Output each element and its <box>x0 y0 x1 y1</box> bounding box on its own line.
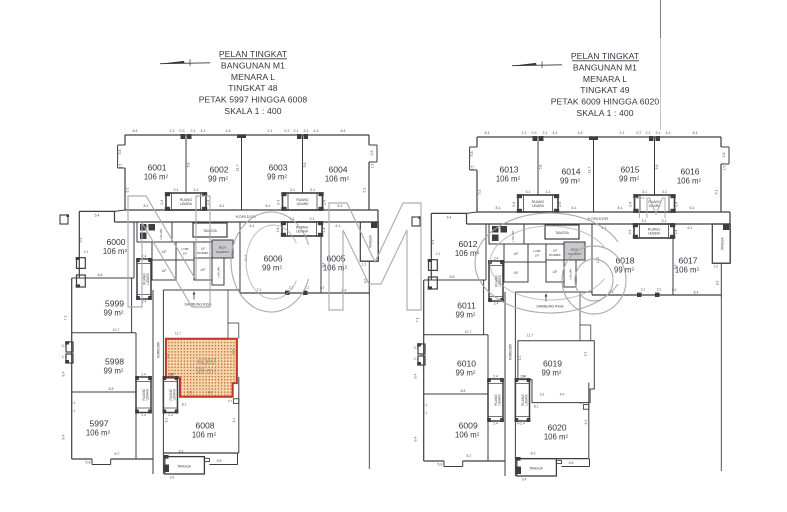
svg-text:2.4: 2.4 <box>277 200 281 205</box>
svg-text:2.4: 2.4 <box>141 413 146 417</box>
svg-text:6.1: 6.1 <box>338 204 343 208</box>
svg-text:99 m2: 99 m2 <box>560 177 580 186</box>
svg-text:5.1: 5.1 <box>478 190 482 195</box>
svg-text:2.4: 2.4 <box>628 230 632 235</box>
svg-text:3.1: 3.1 <box>304 129 309 133</box>
svg-text:5.4: 5.4 <box>447 216 452 220</box>
svg-text:SKALA 1 : 400: SKALA 1 : 400 <box>576 108 633 118</box>
svg-text:KORIDOR: KORIDOR <box>157 342 161 358</box>
svg-text:11.7: 11.7 <box>527 334 533 338</box>
svg-text:SAMBUNG RIGA: SAMBUNG RIGA <box>536 305 564 309</box>
svg-text:BILIK: BILIK <box>219 246 228 250</box>
svg-text:8.4: 8.4 <box>414 437 418 442</box>
svg-text:5.4: 5.4 <box>95 214 100 218</box>
svg-text:0.7: 0.7 <box>285 129 290 133</box>
svg-text:6000: 6000 <box>106 237 125 247</box>
svg-text:5.8: 5.8 <box>470 152 474 157</box>
svg-text:6.1: 6.1 <box>250 224 255 228</box>
svg-text:8.8: 8.8 <box>109 387 114 391</box>
svg-text:106 m2: 106 m2 <box>323 264 348 273</box>
svg-text:3.1: 3.1 <box>526 190 531 194</box>
svg-text:99 m2: 99 m2 <box>103 367 123 376</box>
svg-text:UDARA: UDARA <box>180 202 193 206</box>
svg-text:5999: 5999 <box>105 299 124 309</box>
svg-text:2.1: 2.1 <box>657 288 662 292</box>
svg-text:LIF: LIF <box>183 252 188 256</box>
svg-text:11.7: 11.7 <box>588 167 592 174</box>
svg-text:6007: 6007 <box>197 357 216 367</box>
svg-text:3.1: 3.1 <box>290 188 295 192</box>
svg-text:5.8: 5.8 <box>303 163 307 168</box>
svg-text:UDARA: UDARA <box>532 204 545 208</box>
svg-text:4.0: 4.0 <box>208 391 213 395</box>
svg-text:LALUAN: LALUAN <box>217 267 221 278</box>
svg-text:6.1: 6.1 <box>517 420 521 425</box>
svg-text:5.1: 5.1 <box>126 188 130 193</box>
svg-text:6018: 6018 <box>615 256 634 266</box>
svg-text:4.1: 4.1 <box>553 131 558 135</box>
svg-text:8.1: 8.1 <box>534 405 539 409</box>
svg-text:2.4: 2.4 <box>206 200 210 205</box>
svg-text:5.8: 5.8 <box>438 463 443 467</box>
svg-text:3.1: 3.1 <box>546 190 551 194</box>
svg-text:6.3: 6.3 <box>322 263 326 268</box>
svg-text:TANGGA: TANGGA <box>177 465 191 469</box>
svg-text:8.5: 8.5 <box>716 281 720 286</box>
svg-text:5.8: 5.8 <box>655 165 659 170</box>
svg-text:5.8: 5.8 <box>86 461 91 465</box>
svg-text:UDARA: UDARA <box>498 394 502 406</box>
svg-text:3.1: 3.1 <box>310 217 315 221</box>
svg-text:LIF: LIF <box>162 269 167 273</box>
svg-text:5.8: 5.8 <box>217 459 222 463</box>
svg-text:5.8: 5.8 <box>118 150 122 155</box>
svg-text:2.4: 2.4 <box>494 302 499 306</box>
svg-text:2.1: 2.1 <box>71 409 76 413</box>
svg-text:3.1: 3.1 <box>414 346 419 350</box>
svg-text:2.4: 2.4 <box>141 373 146 377</box>
svg-text:6.1: 6.1 <box>165 418 169 423</box>
svg-text:2.1: 2.1 <box>170 129 175 133</box>
svg-text:3.1: 3.1 <box>423 403 428 407</box>
svg-text:2.1: 2.1 <box>646 131 651 135</box>
svg-text:8.4: 8.4 <box>341 129 346 133</box>
svg-text:UDARA: UDARA <box>525 394 529 406</box>
svg-text:6020: 6020 <box>547 423 566 433</box>
svg-text:5.1: 5.1 <box>363 188 367 193</box>
svg-text:8.3: 8.3 <box>531 452 536 456</box>
svg-text:5.8: 5.8 <box>187 163 191 168</box>
svg-text:8.7: 8.7 <box>467 454 472 458</box>
svg-text:2.4: 2.4 <box>520 375 525 379</box>
svg-text:0.7: 0.7 <box>228 399 233 403</box>
svg-text:99 m2: 99 m2 <box>196 367 216 376</box>
svg-text:3.1: 3.1 <box>188 391 193 395</box>
svg-text:8.3: 8.3 <box>179 450 184 454</box>
svg-text:MENARA L: MENARA L <box>583 74 627 84</box>
svg-text:1.5: 1.5 <box>119 164 123 169</box>
svg-text:6003: 6003 <box>268 163 287 173</box>
svg-text:1.3: 1.3 <box>361 263 366 267</box>
svg-text:106 m2: 106 m2 <box>325 175 350 184</box>
svg-text:8.4: 8.4 <box>62 435 66 440</box>
svg-text:6.1: 6.1 <box>336 224 341 228</box>
svg-text:5997: 5997 <box>89 419 108 429</box>
svg-text:6015: 6015 <box>620 165 639 175</box>
svg-text:1.5: 1.5 <box>371 164 375 169</box>
svg-text:MENARA L: MENARA L <box>231 72 275 82</box>
svg-text:2.2: 2.2 <box>231 350 235 355</box>
svg-text:0.9: 0.9 <box>320 286 325 290</box>
svg-text:2.4: 2.4 <box>520 422 525 426</box>
svg-text:3.1: 3.1 <box>642 190 647 194</box>
svg-text:2.4: 2.4 <box>493 422 498 426</box>
svg-text:11.7: 11.7 <box>236 165 240 172</box>
svg-text:LOBI: LOBI <box>181 247 188 251</box>
svg-text:SKALA 1 : 400: SKALA 1 : 400 <box>224 106 281 116</box>
svg-text:6004: 6004 <box>328 165 347 175</box>
svg-text:8.4: 8.4 <box>342 289 347 293</box>
svg-text:UDARA: UDARA <box>146 388 150 400</box>
svg-text:LIF: LIF <box>535 254 540 258</box>
svg-text:LIF: LIF <box>162 250 167 254</box>
svg-text:UDARA: UDARA <box>297 202 310 206</box>
svg-text:6.1: 6.1 <box>232 418 236 423</box>
svg-text:99 m2: 99 m2 <box>262 264 282 273</box>
svg-text:4.1: 4.1 <box>201 129 206 133</box>
svg-text:5.1: 5.1 <box>715 190 719 195</box>
svg-text:3.4: 3.4 <box>522 478 527 482</box>
svg-text:3.1: 3.1 <box>71 401 76 405</box>
svg-text:3.1: 3.1 <box>642 219 647 223</box>
svg-text:BANGUNAN M1: BANGUNAN M1 <box>573 62 637 72</box>
svg-text:2.1: 2.1 <box>436 252 441 256</box>
svg-text:8.4: 8.4 <box>414 374 418 379</box>
svg-text:6012: 6012 <box>458 239 477 249</box>
svg-text:4.1: 4.1 <box>518 356 522 361</box>
svg-text:106 m2: 106 m2 <box>544 433 569 442</box>
svg-text:1.5: 1.5 <box>471 166 475 171</box>
svg-text:99 m2: 99 m2 <box>208 175 228 184</box>
svg-text:5.4: 5.4 <box>431 240 435 245</box>
svg-text:BOMBA: BOMBA <box>549 253 561 257</box>
svg-text:6010: 6010 <box>457 359 476 369</box>
svg-text:0.3: 0.3 <box>532 131 537 135</box>
svg-text:106 m2: 106 m2 <box>496 175 521 184</box>
svg-text:8.1: 8.1 <box>144 204 149 208</box>
svg-text:11.7: 11.7 <box>113 328 120 332</box>
svg-text:1.8: 1.8 <box>226 129 231 133</box>
svg-text:LIF: LIF <box>514 271 519 275</box>
svg-text:106 m2: 106 m2 <box>675 266 700 275</box>
svg-text:3.1: 3.1 <box>310 188 315 192</box>
svg-text:KORIDOR: KORIDOR <box>509 344 513 360</box>
svg-text:LOBI: LOBI <box>533 249 540 253</box>
svg-text:2.2: 2.2 <box>583 352 587 357</box>
svg-text:3.1: 3.1 <box>194 188 199 192</box>
svg-text:PETAK 5997 HINGGA 6008: PETAK 5997 HINGGA 6008 <box>199 95 308 105</box>
svg-text:8.8: 8.8 <box>461 389 466 393</box>
svg-text:2.1: 2.1 <box>294 129 299 133</box>
svg-text:8.4: 8.4 <box>133 129 138 133</box>
svg-text:6011: 6011 <box>457 301 476 311</box>
svg-text:BANGUNAN M1: BANGUNAN M1 <box>221 60 285 70</box>
svg-text:2.1: 2.1 <box>191 129 196 133</box>
svg-text:6.1: 6.1 <box>572 206 577 210</box>
svg-text:8.4: 8.4 <box>485 131 490 135</box>
svg-text:UDARA: UDARA <box>146 273 150 285</box>
svg-text:8.1: 8.1 <box>496 206 501 210</box>
svg-text:8.7: 8.7 <box>115 452 120 456</box>
svg-text:6017: 6017 <box>678 256 697 266</box>
svg-text:TANGGA: TANGGA <box>555 231 569 235</box>
svg-text:3.1: 3.1 <box>174 188 179 192</box>
svg-text:8.8: 8.8 <box>450 275 455 279</box>
svg-text:2.4: 2.4 <box>675 202 679 207</box>
svg-text:6009: 6009 <box>459 421 478 431</box>
svg-text:106 m2: 106 m2 <box>144 173 169 182</box>
svg-text:6016: 6016 <box>680 167 699 177</box>
svg-text:7.1: 7.1 <box>64 316 68 321</box>
svg-text:LALUAN: LALUAN <box>569 269 573 280</box>
svg-text:LIF: LIF <box>514 252 519 256</box>
svg-text:8.1: 8.1 <box>148 224 153 228</box>
svg-text:6006: 6006 <box>263 254 282 264</box>
svg-text:LIF: LIF <box>553 270 558 274</box>
svg-text:2.1: 2.1 <box>62 355 67 359</box>
svg-text:TANGGA: TANGGA <box>529 467 543 471</box>
svg-text:3.8: 3.8 <box>370 151 374 156</box>
svg-text:2.1: 2.1 <box>423 411 428 415</box>
svg-text:2.1: 2.1 <box>414 357 419 361</box>
svg-text:2.4: 2.4 <box>168 413 173 417</box>
svg-text:3.4: 3.4 <box>170 476 175 480</box>
svg-text:5998: 5998 <box>105 357 124 367</box>
svg-text:2.1: 2.1 <box>268 129 273 133</box>
svg-text:1.3: 1.3 <box>713 265 718 269</box>
svg-text:KORIDOR: KORIDOR <box>588 216 609 221</box>
svg-text:BOMBA: BOMBA <box>197 251 209 255</box>
svg-text:1.8: 1.8 <box>578 131 583 135</box>
svg-text:6002: 6002 <box>209 165 228 175</box>
svg-text:6.1: 6.1 <box>688 226 693 230</box>
svg-text:2.4: 2.4 <box>322 228 326 233</box>
svg-text:5.8: 5.8 <box>569 461 574 465</box>
svg-text:6.1: 6.1 <box>584 420 588 425</box>
svg-text:8.1: 8.1 <box>182 403 187 407</box>
svg-text:2.1: 2.1 <box>641 288 646 292</box>
svg-text:99 m2: 99 m2 <box>619 175 639 184</box>
svg-text:6.1: 6.1 <box>220 204 225 208</box>
svg-text:LALUAN: LALUAN <box>511 231 515 242</box>
svg-text:8.4: 8.4 <box>693 131 698 135</box>
svg-text:3.1: 3.1 <box>62 344 67 348</box>
svg-text:99 m2: 99 m2 <box>455 369 475 378</box>
svg-text:6019: 6019 <box>543 359 562 369</box>
svg-text:106 m2: 106 m2 <box>103 247 128 256</box>
svg-text:99 m2: 99 m2 <box>541 369 561 378</box>
svg-text:2.4: 2.4 <box>276 228 280 233</box>
svg-text:SAMBUNG RIGA: SAMBUNG RIGA <box>184 303 212 307</box>
svg-text:8.1: 8.1 <box>618 206 623 210</box>
svg-text:LALUAN: LALUAN <box>159 229 163 240</box>
svg-text:TANGGA: TANGGA <box>369 235 373 249</box>
svg-text:LIF: LIF <box>553 249 558 253</box>
svg-text:UDARA: UDARA <box>648 231 661 235</box>
svg-text:2.4: 2.4 <box>512 202 516 207</box>
svg-text:TINGKAT 49: TINGKAT 49 <box>580 85 630 95</box>
svg-text:2.1: 2.1 <box>84 250 89 254</box>
svg-text:0.9: 0.9 <box>672 288 677 292</box>
svg-text:PELAN TINGKAT: PELAN TINGKAT <box>571 51 640 61</box>
svg-text:2.4: 2.4 <box>629 202 633 207</box>
svg-text:6013: 6013 <box>499 165 518 175</box>
svg-text:0.7: 0.7 <box>637 131 642 135</box>
svg-text:UDARA: UDARA <box>173 388 177 400</box>
svg-text:TINGKAT 48: TINGKAT 48 <box>228 83 278 93</box>
svg-text:PETAK 6009 HINGGA 6020: PETAK 6009 HINGGA 6020 <box>551 97 660 107</box>
svg-text:2.4: 2.4 <box>168 373 173 377</box>
svg-text:8.4: 8.4 <box>62 372 66 377</box>
svg-text:106 m2: 106 m2 <box>677 177 702 186</box>
svg-text:4.0: 4.0 <box>560 393 565 397</box>
svg-text:4.2: 4.2 <box>666 131 671 135</box>
svg-text:106 m2: 106 m2 <box>86 429 111 438</box>
svg-text:1.5: 1.5 <box>723 166 727 171</box>
svg-text:LIF: LIF <box>201 268 206 272</box>
svg-text:2.1: 2.1 <box>620 131 625 135</box>
svg-text:2.4: 2.4 <box>558 202 562 207</box>
svg-text:2.4: 2.4 <box>493 375 498 379</box>
svg-text:11.7: 11.7 <box>465 330 472 334</box>
svg-text:8.4: 8.4 <box>694 291 699 295</box>
svg-text:4.2: 4.2 <box>314 129 319 133</box>
svg-text:6.3: 6.3 <box>674 265 678 270</box>
svg-text:2.4: 2.4 <box>323 200 327 205</box>
svg-text:6.1: 6.1 <box>690 206 695 210</box>
svg-text:2.4: 2.4 <box>160 200 164 205</box>
svg-text:4.1: 4.1 <box>166 354 170 359</box>
svg-text:6014: 6014 <box>561 167 580 177</box>
svg-text:7.1: 7.1 <box>416 318 420 323</box>
svg-text:6001: 6001 <box>147 163 166 173</box>
svg-text:3.8: 3.8 <box>722 153 726 158</box>
svg-text:3.1: 3.1 <box>656 131 661 135</box>
svg-text:5.8: 5.8 <box>539 165 543 170</box>
svg-text:PELAN TINGKAT: PELAN TINGKAT <box>219 49 288 59</box>
svg-text:SAMPAH: SAMPAH <box>216 250 229 254</box>
svg-text:99 m2: 99 m2 <box>103 309 123 318</box>
svg-text:5.4: 5.4 <box>79 238 83 243</box>
svg-text:8.1: 8.1 <box>500 226 505 230</box>
svg-text:TANGGA: TANGGA <box>721 237 725 251</box>
svg-text:8.1: 8.1 <box>266 204 271 208</box>
svg-text:0.3: 0.3 <box>180 129 185 133</box>
svg-text:106 m2: 106 m2 <box>192 431 217 440</box>
svg-text:99 m2: 99 m2 <box>267 173 287 182</box>
svg-text:3.1: 3.1 <box>662 219 667 223</box>
svg-text:3.1: 3.1 <box>540 393 545 397</box>
svg-text:99 m2: 99 m2 <box>455 311 475 320</box>
svg-text:6008: 6008 <box>195 421 214 431</box>
svg-text:8.8: 8.8 <box>98 273 103 277</box>
svg-text:106 m2: 106 m2 <box>455 431 480 440</box>
svg-text:2.4: 2.4 <box>674 230 678 235</box>
svg-text:2.1: 2.1 <box>522 131 527 135</box>
svg-text:LIF: LIF <box>201 247 206 251</box>
svg-text:3.1: 3.1 <box>662 190 667 194</box>
svg-text:2.1: 2.1 <box>543 131 548 135</box>
svg-text:2.4: 2.4 <box>494 257 499 261</box>
svg-text:11.7: 11.7 <box>175 332 181 336</box>
